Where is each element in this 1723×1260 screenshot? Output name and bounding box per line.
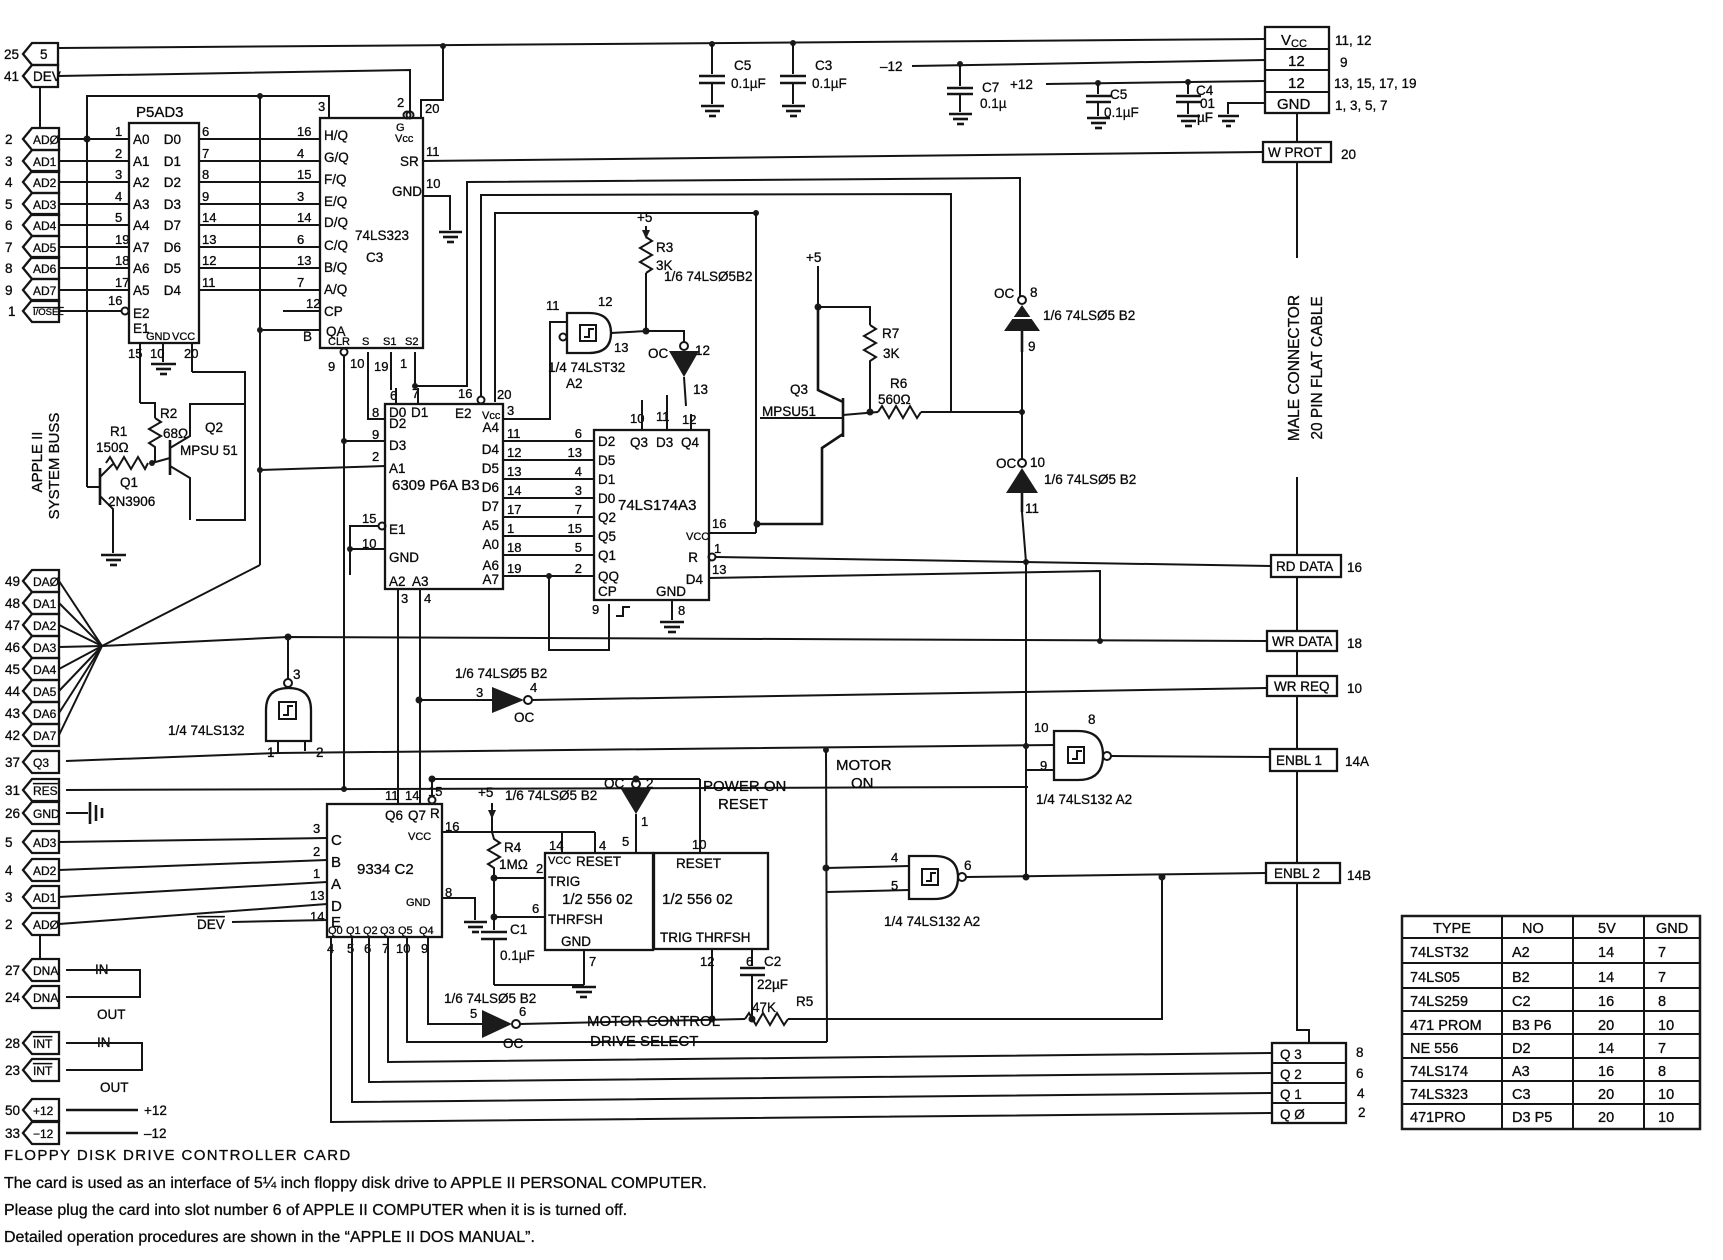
svg-text:471PRO: 471PRO bbox=[1410, 1110, 1466, 1126]
svg-text:47: 47 bbox=[5, 618, 20, 633]
svg-text:560Ω: 560Ω bbox=[878, 392, 911, 407]
svg-text:Q5: Q5 bbox=[598, 529, 616, 544]
svg-text:Detailed operation procedures: Detailed operation procedures are shown … bbox=[4, 1229, 535, 1246]
svg-text:ENBL 2: ENBL 2 bbox=[1274, 866, 1320, 881]
svg-text:15: 15 bbox=[362, 511, 376, 526]
svg-text:Q3: Q3 bbox=[33, 756, 49, 770]
svg-text:5: 5 bbox=[40, 47, 48, 62]
svg-text:10: 10 bbox=[1658, 1018, 1674, 1034]
svg-text:11: 11 bbox=[385, 788, 399, 803]
svg-text:6: 6 bbox=[202, 124, 209, 139]
svg-text:A3: A3 bbox=[133, 197, 150, 212]
svg-text:33: 33 bbox=[5, 1126, 20, 1141]
svg-text:A3: A3 bbox=[1512, 1064, 1530, 1080]
svg-text:MOTOR CONTROL: MOTOR CONTROL bbox=[587, 1013, 720, 1030]
svg-text:12: 12 bbox=[507, 445, 521, 460]
svg-text:Q5: Q5 bbox=[398, 925, 413, 937]
svg-text:FLOPPY DISK DRIVE CONTROLLE: FLOPPY DISK DRIVE CONTROLLER CARD bbox=[4, 1147, 352, 1164]
svg-text:A7: A7 bbox=[133, 240, 150, 255]
svg-text:18: 18 bbox=[507, 540, 521, 555]
svg-text:6: 6 bbox=[364, 941, 371, 956]
svg-text:VCC: VCC bbox=[408, 831, 431, 843]
svg-text:48: 48 bbox=[5, 596, 20, 611]
svg-text:Please plug the card into slot: Please plug the card into slot number 6 … bbox=[4, 1202, 627, 1219]
svg-text:C2: C2 bbox=[1512, 994, 1531, 1010]
svg-text:37: 37 bbox=[5, 755, 20, 770]
svg-text:9: 9 bbox=[372, 427, 379, 442]
svg-text:+5: +5 bbox=[806, 250, 821, 265]
svg-text:16: 16 bbox=[712, 516, 726, 531]
svg-text:POWER ON: POWER ON bbox=[703, 778, 786, 795]
svg-text:SR: SR bbox=[400, 154, 419, 169]
svg-text:2N3906: 2N3906 bbox=[108, 494, 155, 509]
svg-text:12: 12 bbox=[682, 412, 696, 427]
svg-text:14: 14 bbox=[202, 210, 216, 225]
svg-text:5: 5 bbox=[575, 540, 582, 555]
svg-text:Q4: Q4 bbox=[681, 435, 700, 450]
svg-text:0.1µF: 0.1µF bbox=[731, 76, 766, 91]
svg-text:R3: R3 bbox=[656, 240, 673, 255]
svg-text:DEV: DEV bbox=[197, 917, 225, 932]
svg-text:APPLE II: APPLE II bbox=[29, 432, 46, 493]
svg-text:1: 1 bbox=[641, 814, 648, 829]
svg-text:I/OSEL: I/OSEL bbox=[33, 307, 64, 318]
svg-text:D: D bbox=[331, 898, 342, 915]
svg-text:OUT: OUT bbox=[100, 1080, 129, 1095]
svg-text:C7: C7 bbox=[982, 80, 999, 95]
svg-text:D4: D4 bbox=[164, 283, 182, 298]
svg-text:D4: D4 bbox=[686, 572, 704, 587]
svg-text:ENBL 1: ENBL 1 bbox=[1276, 753, 1322, 768]
svg-text:D5: D5 bbox=[482, 461, 499, 476]
svg-text:GND: GND bbox=[389, 550, 419, 565]
svg-text:74LS174: 74LS174 bbox=[1410, 1064, 1468, 1080]
svg-text:19: 19 bbox=[115, 232, 129, 247]
svg-text:C3: C3 bbox=[1512, 1087, 1531, 1103]
svg-text:16: 16 bbox=[1598, 1064, 1614, 1080]
svg-text:6: 6 bbox=[1356, 1066, 1364, 1081]
svg-text:45: 45 bbox=[5, 662, 20, 677]
svg-text:OC: OC bbox=[648, 346, 669, 361]
svg-text:Q 3: Q 3 bbox=[1280, 1047, 1302, 1062]
svg-text:S2: S2 bbox=[405, 336, 418, 348]
svg-text:D2: D2 bbox=[1512, 1041, 1531, 1057]
svg-text:2: 2 bbox=[115, 146, 122, 161]
svg-text:0.1µ: 0.1µ bbox=[980, 96, 1007, 111]
svg-text:10: 10 bbox=[1034, 720, 1048, 735]
svg-text:6309 P6A B3: 6309 P6A B3 bbox=[392, 477, 480, 494]
svg-text:11: 11 bbox=[507, 426, 521, 441]
svg-text:A2: A2 bbox=[566, 376, 583, 391]
svg-text:17: 17 bbox=[507, 502, 521, 517]
svg-text:RD DATA: RD DATA bbox=[1276, 559, 1333, 574]
svg-text:DA3: DA3 bbox=[33, 641, 57, 655]
svg-text:Q3: Q3 bbox=[630, 435, 648, 450]
svg-text:22µF: 22µF bbox=[757, 977, 788, 992]
svg-text:10: 10 bbox=[426, 176, 440, 191]
svg-text:4: 4 bbox=[297, 146, 304, 161]
svg-text:5: 5 bbox=[5, 197, 13, 212]
svg-text:20: 20 bbox=[425, 101, 439, 116]
svg-text:16: 16 bbox=[108, 293, 122, 308]
svg-text:150Ω: 150Ω bbox=[96, 440, 129, 455]
svg-text:AD2: AD2 bbox=[33, 176, 57, 190]
svg-text:0.1µF: 0.1µF bbox=[500, 948, 535, 963]
svg-text:AD2: AD2 bbox=[33, 864, 57, 878]
svg-text:12: 12 bbox=[202, 253, 216, 268]
svg-text:A5: A5 bbox=[482, 518, 499, 533]
svg-text:ON: ON bbox=[851, 775, 874, 792]
svg-text:D0: D0 bbox=[598, 491, 615, 506]
svg-text:RESET: RESET bbox=[676, 856, 721, 871]
svg-text:9: 9 bbox=[202, 189, 209, 204]
svg-text:1: 1 bbox=[313, 866, 320, 881]
svg-text:4: 4 bbox=[530, 680, 537, 695]
svg-text:14: 14 bbox=[1598, 970, 1614, 986]
svg-text:31: 31 bbox=[5, 783, 20, 798]
svg-text:F/Q: F/Q bbox=[324, 172, 347, 187]
svg-text:A6: A6 bbox=[133, 261, 150, 276]
svg-text:16: 16 bbox=[297, 124, 311, 139]
svg-text:AD1: AD1 bbox=[33, 891, 57, 905]
svg-text:DA4: DA4 bbox=[33, 663, 57, 677]
svg-text:14: 14 bbox=[549, 838, 563, 853]
svg-text:14: 14 bbox=[310, 909, 324, 924]
svg-text:18: 18 bbox=[1347, 636, 1362, 651]
svg-text:25: 25 bbox=[4, 47, 19, 62]
svg-text:C5: C5 bbox=[1110, 87, 1127, 102]
svg-text:E/Q: E/Q bbox=[324, 194, 347, 209]
svg-text:5: 5 bbox=[891, 878, 898, 893]
svg-text:DNA: DNA bbox=[33, 964, 58, 978]
svg-text:14B: 14B bbox=[1347, 868, 1371, 883]
svg-text:A0: A0 bbox=[482, 537, 499, 552]
svg-text:GND: GND bbox=[33, 807, 60, 821]
svg-text:8: 8 bbox=[1356, 1045, 1364, 1060]
svg-text:46: 46 bbox=[5, 640, 20, 655]
svg-text:OC: OC bbox=[503, 1036, 524, 1051]
svg-text:28: 28 bbox=[5, 1036, 20, 1051]
svg-text:VCC: VCC bbox=[548, 855, 571, 867]
svg-text:9: 9 bbox=[592, 602, 599, 617]
svg-text:C: C bbox=[331, 832, 342, 849]
svg-text:A: A bbox=[331, 876, 341, 893]
svg-text:6: 6 bbox=[532, 901, 539, 916]
svg-text:B: B bbox=[303, 329, 312, 344]
svg-text:2: 2 bbox=[1358, 1105, 1366, 1120]
svg-text:1: 1 bbox=[8, 304, 16, 319]
svg-text:11: 11 bbox=[202, 275, 216, 290]
svg-text:11, 12: 11, 12 bbox=[1335, 33, 1372, 48]
svg-text:Vcc: Vcc bbox=[395, 133, 414, 145]
svg-text:Q4: Q4 bbox=[419, 925, 434, 937]
svg-text:4: 4 bbox=[424, 591, 431, 606]
svg-text:C/Q: C/Q bbox=[324, 238, 348, 253]
svg-text:B2: B2 bbox=[1512, 970, 1530, 986]
svg-text:D6: D6 bbox=[164, 240, 181, 255]
svg-text:0.1µF: 0.1µF bbox=[812, 76, 847, 91]
svg-text:23: 23 bbox=[5, 1063, 20, 1078]
svg-text:D3 P5: D3 P5 bbox=[1512, 1110, 1552, 1126]
svg-text:AD1: AD1 bbox=[33, 155, 57, 169]
svg-text:12: 12 bbox=[700, 954, 714, 969]
svg-text:1/4 74LS132 A2: 1/4 74LS132 A2 bbox=[1036, 792, 1132, 807]
svg-text:10: 10 bbox=[1030, 455, 1045, 470]
svg-text:14: 14 bbox=[507, 483, 521, 498]
svg-text:8: 8 bbox=[1658, 1064, 1666, 1080]
svg-text:E1: E1 bbox=[389, 522, 406, 537]
svg-text:Q7: Q7 bbox=[408, 808, 426, 823]
svg-text:THRFSH: THRFSH bbox=[548, 912, 603, 927]
svg-text:R: R bbox=[430, 806, 440, 821]
svg-text:8: 8 bbox=[1030, 285, 1038, 300]
svg-text:A5: A5 bbox=[133, 283, 150, 298]
svg-text:D5: D5 bbox=[164, 261, 181, 276]
svg-text:7: 7 bbox=[575, 502, 582, 517]
svg-text:D2: D2 bbox=[389, 416, 406, 431]
svg-text:10: 10 bbox=[150, 346, 164, 361]
svg-text:5: 5 bbox=[5, 835, 13, 850]
svg-text:13: 13 bbox=[297, 253, 311, 268]
svg-text:+12: +12 bbox=[1010, 77, 1033, 92]
svg-text:14: 14 bbox=[1598, 945, 1614, 961]
svg-text:RESET: RESET bbox=[718, 796, 768, 813]
svg-text:R5: R5 bbox=[796, 994, 813, 1009]
svg-text:12: 12 bbox=[1288, 53, 1305, 70]
svg-text:Q6: Q6 bbox=[385, 808, 403, 823]
svg-text:AD3: AD3 bbox=[33, 198, 57, 212]
svg-text:6: 6 bbox=[964, 858, 972, 873]
svg-text:6: 6 bbox=[575, 426, 582, 441]
svg-text:+5: +5 bbox=[478, 785, 493, 800]
svg-text:44: 44 bbox=[5, 684, 21, 699]
svg-text:7: 7 bbox=[1658, 970, 1666, 986]
svg-text:9: 9 bbox=[5, 283, 13, 298]
svg-text:3K: 3K bbox=[883, 346, 900, 361]
svg-text:14A: 14A bbox=[1345, 754, 1369, 769]
svg-text:CP: CP bbox=[324, 304, 343, 319]
svg-text:10: 10 bbox=[1658, 1087, 1674, 1103]
svg-text:4: 4 bbox=[575, 464, 582, 479]
svg-text:RES: RES bbox=[33, 784, 58, 798]
svg-text:DNA: DNA bbox=[33, 991, 58, 1005]
svg-text:24: 24 bbox=[5, 990, 21, 1005]
svg-text:DA5: DA5 bbox=[33, 685, 57, 699]
svg-text:13: 13 bbox=[202, 232, 216, 247]
svg-text:D4: D4 bbox=[482, 442, 500, 457]
svg-text:D1: D1 bbox=[164, 154, 181, 169]
svg-text:D7: D7 bbox=[164, 218, 181, 233]
svg-text:OUT: OUT bbox=[97, 1007, 126, 1022]
svg-text:8: 8 bbox=[1088, 712, 1096, 727]
svg-text:OC: OC bbox=[604, 776, 625, 791]
svg-text:3: 3 bbox=[476, 685, 483, 700]
svg-text:4: 4 bbox=[891, 850, 898, 865]
svg-text:2: 2 bbox=[646, 776, 654, 791]
svg-text:DA6: DA6 bbox=[33, 707, 57, 721]
svg-text:B3 P6: B3 P6 bbox=[1512, 1018, 1552, 1034]
svg-text:Q3: Q3 bbox=[790, 382, 808, 397]
svg-text:S: S bbox=[362, 336, 369, 348]
svg-text:15: 15 bbox=[128, 346, 142, 361]
svg-text:43: 43 bbox=[5, 706, 20, 721]
svg-text:CLR: CLR bbox=[328, 336, 350, 348]
svg-text:D/Q: D/Q bbox=[324, 215, 348, 230]
svg-text:B: B bbox=[331, 854, 341, 871]
svg-text:MOTOR: MOTOR bbox=[836, 757, 892, 774]
svg-text:−12: −12 bbox=[33, 1127, 54, 1141]
svg-text:DA1: DA1 bbox=[33, 597, 57, 611]
svg-text:1/2 556 02: 1/2 556 02 bbox=[662, 891, 733, 908]
svg-text:11: 11 bbox=[1025, 501, 1039, 516]
svg-text:50: 50 bbox=[5, 1103, 20, 1118]
svg-text:Q Ø: Q Ø bbox=[1280, 1107, 1305, 1122]
svg-text:15: 15 bbox=[568, 521, 582, 536]
svg-text:TRIG THRFSH: TRIG THRFSH bbox=[660, 930, 751, 945]
svg-text:Q 1: Q 1 bbox=[1280, 1087, 1302, 1102]
svg-text:1/6 74LSØ5 B2: 1/6 74LSØ5 B2 bbox=[455, 666, 547, 681]
svg-text:Q3: Q3 bbox=[380, 925, 395, 937]
svg-text:CP: CP bbox=[598, 584, 617, 599]
svg-text:20: 20 bbox=[1598, 1018, 1614, 1034]
svg-text:+12: +12 bbox=[33, 1104, 54, 1118]
svg-text:A6: A6 bbox=[482, 558, 499, 573]
svg-text:WR DATA: WR DATA bbox=[1272, 634, 1332, 649]
svg-text:20: 20 bbox=[497, 387, 511, 402]
svg-text:10: 10 bbox=[1658, 1110, 1674, 1126]
svg-text:7: 7 bbox=[1658, 945, 1666, 961]
svg-text:1: 1 bbox=[507, 521, 514, 536]
svg-text:INT: INT bbox=[33, 1064, 53, 1078]
svg-text:AD6: AD6 bbox=[33, 262, 57, 276]
svg-text:4: 4 bbox=[1357, 1086, 1365, 1101]
svg-text:NE 556: NE 556 bbox=[1410, 1041, 1458, 1057]
svg-text:74LST32: 74LST32 bbox=[1410, 945, 1469, 961]
svg-text:13, 15, 17, 19: 13, 15, 17, 19 bbox=[1334, 76, 1417, 91]
svg-text:Q1: Q1 bbox=[598, 548, 616, 563]
svg-text:3: 3 bbox=[318, 99, 325, 114]
svg-text:ADØ: ADØ bbox=[33, 133, 59, 147]
svg-text:C5: C5 bbox=[734, 58, 751, 73]
svg-text:DA2: DA2 bbox=[33, 619, 57, 633]
svg-text:Q0: Q0 bbox=[328, 925, 343, 937]
svg-text:Q2: Q2 bbox=[363, 925, 378, 937]
svg-text:A2: A2 bbox=[133, 175, 150, 190]
svg-text:471 PROM: 471 PROM bbox=[1410, 1018, 1482, 1034]
svg-text:4: 4 bbox=[115, 189, 122, 204]
svg-text:QQ: QQ bbox=[598, 569, 619, 584]
svg-text:2: 2 bbox=[5, 917, 13, 932]
svg-text:TYPE: TYPE bbox=[1433, 921, 1471, 937]
svg-text:+12: +12 bbox=[144, 1103, 167, 1118]
svg-text:The card is used as an interfa: The card is used as an interface of 5¼ i… bbox=[4, 1175, 707, 1192]
svg-text:01: 01 bbox=[1200, 96, 1215, 111]
svg-text:MPSU51: MPSU51 bbox=[762, 404, 816, 419]
svg-text:1/6 74LSØ5B2: 1/6 74LSØ5B2 bbox=[664, 269, 753, 284]
svg-text:1: 1 bbox=[400, 356, 407, 371]
svg-text:12: 12 bbox=[598, 294, 612, 309]
svg-text:GND: GND bbox=[1277, 96, 1311, 113]
svg-text:A2: A2 bbox=[389, 574, 406, 589]
svg-text:WR REQ: WR REQ bbox=[1274, 679, 1330, 694]
svg-text:+5: +5 bbox=[637, 210, 652, 225]
svg-text:6: 6 bbox=[297, 232, 304, 247]
svg-text:G/Q: G/Q bbox=[324, 150, 349, 165]
svg-text:GND: GND bbox=[1656, 921, 1688, 937]
svg-text:49: 49 bbox=[5, 574, 20, 589]
svg-text:10: 10 bbox=[396, 941, 410, 956]
svg-text:AD4: AD4 bbox=[33, 219, 57, 233]
svg-text:1: 1 bbox=[115, 124, 122, 139]
svg-text:26: 26 bbox=[5, 806, 20, 821]
svg-text:10: 10 bbox=[1347, 681, 1362, 696]
svg-text:D0: D0 bbox=[164, 132, 181, 147]
svg-text:RESET: RESET bbox=[576, 854, 621, 869]
svg-text:C1: C1 bbox=[510, 922, 527, 937]
svg-text:5: 5 bbox=[622, 834, 629, 849]
svg-text:2: 2 bbox=[316, 745, 324, 760]
svg-text:GND: GND bbox=[561, 934, 591, 949]
svg-text:TRIG: TRIG bbox=[548, 874, 580, 889]
svg-text:Q2: Q2 bbox=[598, 510, 616, 525]
svg-text:9: 9 bbox=[328, 359, 335, 374]
svg-text:C3: C3 bbox=[815, 58, 832, 73]
svg-text:16: 16 bbox=[1347, 560, 1362, 575]
svg-text:A/Q: A/Q bbox=[324, 282, 347, 297]
svg-text:74LS323: 74LS323 bbox=[355, 228, 409, 243]
svg-text:MALE CONNECTOR: MALE CONNECTOR bbox=[1286, 295, 1303, 441]
svg-text:8: 8 bbox=[372, 405, 379, 420]
svg-text:13: 13 bbox=[693, 382, 708, 397]
svg-text:3: 3 bbox=[115, 167, 122, 182]
svg-text:1/6 74LSØ5 B2: 1/6 74LSØ5 B2 bbox=[1043, 308, 1135, 323]
svg-text:R2: R2 bbox=[160, 406, 177, 421]
svg-text:GND: GND bbox=[392, 184, 422, 199]
svg-text:47K: 47K bbox=[752, 1000, 776, 1015]
svg-text:OC: OC bbox=[996, 456, 1017, 471]
svg-text:AD5: AD5 bbox=[33, 241, 57, 255]
svg-text:MPSU 51: MPSU 51 bbox=[180, 443, 238, 458]
svg-text:INT: INT bbox=[33, 1037, 53, 1051]
svg-text:10: 10 bbox=[692, 837, 706, 852]
svg-text:14: 14 bbox=[405, 788, 419, 803]
svg-text:GND: GND bbox=[656, 584, 686, 599]
svg-text:6: 6 bbox=[5, 218, 13, 233]
svg-text:7: 7 bbox=[202, 146, 209, 161]
svg-text:E2: E2 bbox=[133, 306, 150, 321]
svg-text:1MΩ: 1MΩ bbox=[499, 857, 528, 872]
svg-text:18: 18 bbox=[115, 253, 129, 268]
svg-text:16: 16 bbox=[458, 386, 472, 401]
svg-text:A2: A2 bbox=[1512, 945, 1530, 961]
svg-text:GND: GND bbox=[406, 897, 431, 909]
svg-text:5: 5 bbox=[470, 1006, 477, 1021]
svg-text:–12: –12 bbox=[144, 1126, 167, 1141]
svg-text:1/6 74LSØ5 B2: 1/6 74LSØ5 B2 bbox=[505, 788, 597, 803]
svg-text:7: 7 bbox=[5, 240, 13, 255]
svg-text:Q 2: Q 2 bbox=[1280, 1067, 1302, 1082]
svg-text:–12: –12 bbox=[880, 59, 903, 74]
svg-text:74LS323: 74LS323 bbox=[1410, 1087, 1468, 1103]
svg-text:1/4 74LST32: 1/4 74LST32 bbox=[548, 360, 625, 375]
svg-text:9334 C2: 9334 C2 bbox=[357, 861, 414, 878]
svg-text:ADØ: ADØ bbox=[33, 918, 59, 932]
svg-text:AD3: AD3 bbox=[33, 836, 57, 850]
svg-text:7: 7 bbox=[297, 275, 304, 290]
svg-text:AD7: AD7 bbox=[33, 284, 57, 298]
svg-text:A7: A7 bbox=[482, 572, 499, 587]
svg-text:DA7: DA7 bbox=[33, 729, 57, 743]
